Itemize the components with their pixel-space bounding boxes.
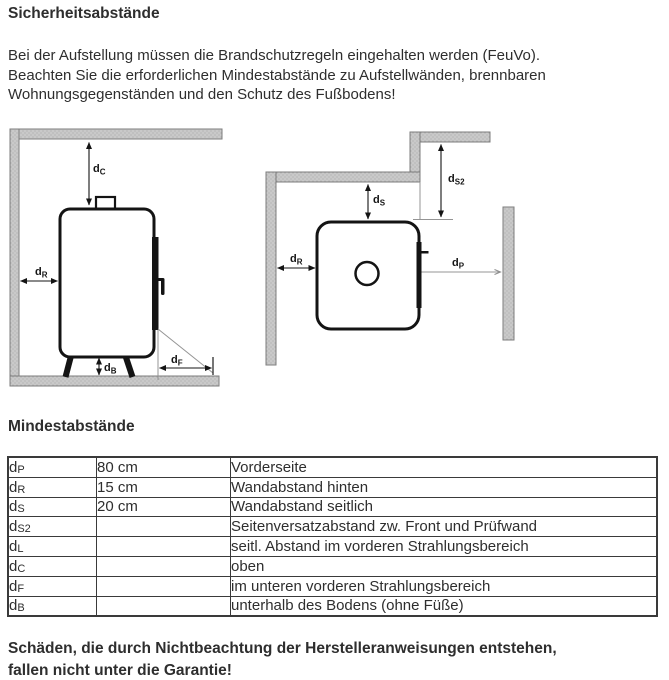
description-cell: seitl. Abstand im vorderen Strahlungsber… [231, 537, 658, 557]
distance-table: dP 80 cm Vorderseite dR 15 cm Wandabstan… [7, 456, 658, 617]
table-row: dS 20 cm Wandabstand seitlich [8, 497, 657, 517]
intro-paragraph: Bei der Aufstellung müssen die Brandschu… [8, 46, 546, 105]
value-cell: 15 cm [97, 477, 231, 497]
front-view: dC dR dB dF [10, 129, 222, 386]
stove-door-handle [161, 278, 165, 295]
value-cell [97, 556, 231, 576]
flue-outlet [356, 262, 379, 285]
symbol-cell: dF [8, 576, 97, 596]
description-cell: Wandabstand seitlich [231, 497, 658, 517]
front-floor [10, 376, 219, 386]
stove-body-front [60, 209, 154, 357]
value-cell [97, 596, 231, 616]
db-label: dB [104, 362, 117, 376]
top-side-wall [266, 172, 420, 182]
table-row: dB unterhalb des Bodens (ohne Füße) [8, 596, 657, 616]
description-cell: oben [231, 556, 658, 576]
section-title: Mindestabstände [8, 418, 135, 436]
page-title: Sicherheitsabstände [8, 5, 160, 23]
value-cell: 20 cm [97, 497, 231, 517]
table-row: dC oben [8, 556, 657, 576]
intro-line: Bei der Aufstellung müssen die Brandschu… [8, 46, 546, 66]
dc-label: dC [93, 163, 106, 177]
description-cell: Vorderseite [231, 457, 658, 477]
intro-line: Wohnungsgegenständen und den Schutz des … [8, 85, 546, 105]
pruefwand [503, 207, 514, 340]
stove-leg-left [66, 356, 72, 377]
warranty-warning: Schäden, die durch Nichtbeachtung der He… [8, 638, 557, 680]
intro-line: Beachten Sie die erforderlichen Mindesta… [8, 66, 546, 86]
value-cell [97, 537, 231, 557]
symbol-cell: dR [8, 477, 97, 497]
dr-label-front: dR [35, 266, 48, 280]
description-cell: unterhalb des Bodens (ohne Füße) [231, 596, 658, 616]
df-radiation-diagonal [158, 329, 213, 373]
front-rear-wall [10, 129, 19, 386]
ds2-label: dS2 [448, 173, 465, 187]
symbol-cell: dL [8, 537, 97, 557]
top-offset-wall [410, 132, 490, 142]
table-row: dF im unteren vorderen Strahlungsbereich [8, 576, 657, 596]
safety-distance-diagram: dC dR dB dF dS [0, 118, 669, 400]
description-cell: Wandabstand hinten [231, 477, 658, 497]
symbol-cell: dS [8, 497, 97, 517]
value-cell [97, 517, 231, 537]
symbol-cell: dC [8, 556, 97, 576]
ds-label: dS [373, 194, 386, 208]
warning-line: Schäden, die durch Nichtbeachtung der He… [8, 638, 557, 660]
dr-label-top: dR [290, 253, 303, 267]
front-ceiling-wall [10, 129, 222, 139]
description-cell: im unteren vorderen Strahlungsbereich [231, 576, 658, 596]
value-cell: 80 cm [97, 457, 231, 477]
description-cell: Seitenversatzabstand zw. Front und Prüfw… [231, 517, 658, 537]
table-row: dR 15 cm Wandabstand hinten [8, 477, 657, 497]
symbol-cell: dS2 [8, 517, 97, 537]
table-row: dL seitl. Abstand im vorderen Strahlungs… [8, 537, 657, 557]
table-row: dP 80 cm Vorderseite [8, 457, 657, 477]
stove-door-handle-top [421, 251, 429, 254]
value-cell [97, 576, 231, 596]
warning-line: fallen nicht unter die Garantie! [8, 660, 557, 680]
df-label: dF [171, 354, 183, 368]
stove-flue-stub [96, 197, 115, 209]
stove-door-front [152, 237, 159, 330]
manual-page: Sicherheitsabstände Bei der Aufstellung … [0, 0, 669, 680]
dp-label: dP [452, 257, 465, 271]
symbol-cell: dB [8, 596, 97, 616]
top-view: dS dS2 dR dP [266, 132, 514, 365]
stove-door-top [417, 242, 422, 308]
symbol-cell: dP [8, 457, 97, 477]
stove-leg-right [126, 356, 133, 377]
table-row: dS2 Seitenversatzabstand zw. Front und P… [8, 517, 657, 537]
top-rear-wall [266, 172, 276, 365]
